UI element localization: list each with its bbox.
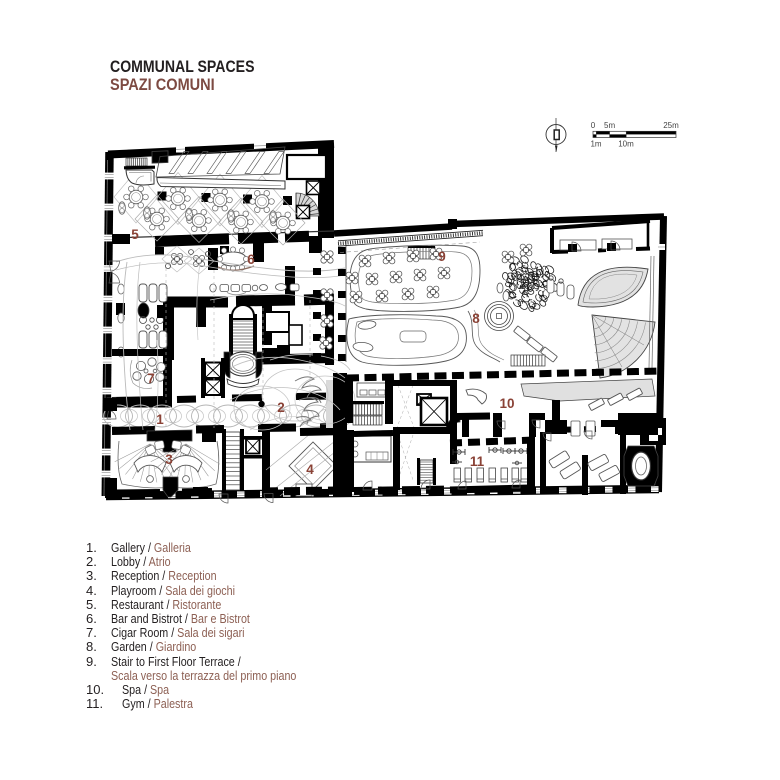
svg-text:1: 1	[156, 412, 164, 427]
svg-text:8: 8	[472, 311, 480, 326]
svg-text:4: 4	[306, 462, 314, 477]
svg-text:9: 9	[438, 249, 446, 264]
svg-text:7: 7	[147, 371, 155, 386]
svg-text:5m: 5m	[604, 121, 615, 130]
svg-text:1m: 1m	[590, 140, 601, 149]
svg-text:10: 10	[499, 396, 514, 411]
svg-text:25m: 25m	[663, 121, 679, 130]
svg-text:11: 11	[470, 454, 485, 469]
svg-text:6: 6	[247, 252, 255, 267]
svg-text:10m: 10m	[618, 140, 634, 149]
svg-text:0: 0	[591, 121, 596, 130]
svg-text:3: 3	[165, 452, 173, 467]
svg-text:2: 2	[277, 400, 285, 415]
svg-text:5: 5	[131, 227, 139, 242]
